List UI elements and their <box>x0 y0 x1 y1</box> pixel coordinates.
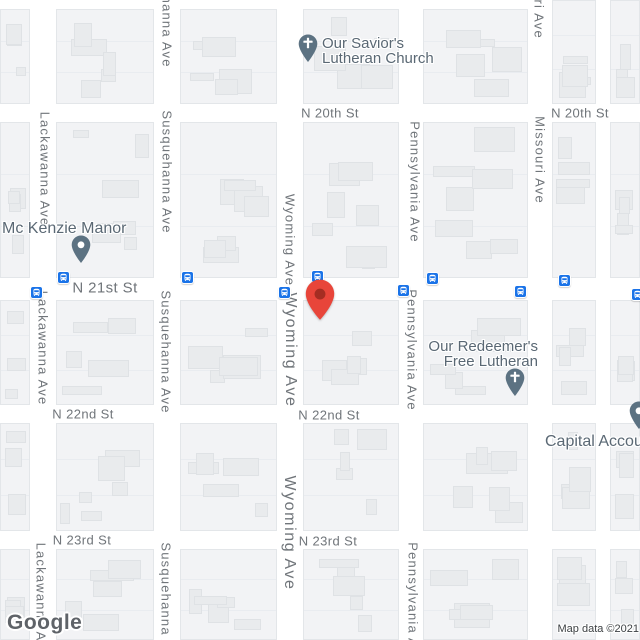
parcel-line <box>424 495 527 496</box>
building-footprint <box>215 79 238 95</box>
building-footprint <box>350 596 363 610</box>
bus-stop-icon[interactable] <box>397 284 410 297</box>
building-footprint <box>569 467 591 492</box>
building-footprint <box>346 246 387 268</box>
poi-label-our-redeemer-s-free-lutheran[interactable]: Our Redeemer'sFree Lutheran <box>428 339 538 369</box>
building-footprint <box>619 197 630 214</box>
building-footprint <box>561 381 587 395</box>
church-pin-icon[interactable] <box>298 34 318 68</box>
building-footprint <box>358 615 372 632</box>
bus-stop-icon[interactable] <box>631 288 640 301</box>
poi-label-line: Capital Account <box>545 434 640 450</box>
building-footprint <box>194 596 227 605</box>
parcel-line <box>1 174 29 175</box>
street-label-n-21st-st: N 21st St <box>72 280 137 297</box>
bus-stop-icon[interactable] <box>30 286 43 299</box>
building-footprint <box>60 503 70 524</box>
parcel-line <box>1 335 29 336</box>
building-footprint <box>7 358 26 371</box>
building-footprint <box>562 65 588 87</box>
poi-label-mc-kenzie-manor[interactable]: Mc Kenzie Manor <box>2 221 127 237</box>
building-footprint <box>255 503 268 517</box>
building-footprint <box>456 54 485 77</box>
building-footprint <box>356 205 379 226</box>
parcel-line <box>57 335 153 336</box>
poi-label-line: Our Redeemer's <box>428 339 538 354</box>
street-label-n-23rd-st: N 23rd St <box>53 533 112 548</box>
parcel-line <box>304 610 398 611</box>
map-attribution: Map data ©2021 <box>558 623 640 635</box>
building-footprint <box>73 130 89 138</box>
building-footprint <box>98 456 125 481</box>
building-footprint <box>319 559 359 568</box>
building-footprint <box>6 431 26 443</box>
building-footprint <box>361 65 393 89</box>
building-footprint <box>5 389 18 399</box>
parcel-line <box>1 579 29 580</box>
building-footprint <box>435 220 473 237</box>
building-footprint <box>620 44 631 70</box>
building-footprint <box>16 67 26 76</box>
avenue-label-susquehanna-ave: Susquehanna Ave <box>160 110 175 233</box>
building-footprint <box>188 346 223 369</box>
avenue-label-missouri-ave: Missouri Ave <box>532 0 547 39</box>
building-footprint <box>112 482 128 496</box>
poi-label-line: Our Savior's <box>322 36 434 51</box>
poi-label-line: Free Lutheran <box>428 354 538 369</box>
building-footprint <box>7 311 24 324</box>
building-footprint <box>79 492 92 503</box>
poi-label-capital-account[interactable]: Capital Account <box>545 434 640 450</box>
building-footprint <box>331 17 347 36</box>
parcel-line <box>304 335 398 336</box>
avenue-label-missouri-ave: Missouri Ave <box>533 116 548 204</box>
building-footprint <box>492 47 522 72</box>
building-footprint <box>6 24 22 45</box>
building-footprint <box>556 179 590 188</box>
street-label-n-22nd-st: N 22nd St <box>52 407 113 422</box>
building-footprint <box>338 162 373 181</box>
poi-label-line: Lutheran Church <box>322 51 434 66</box>
building-footprint <box>474 127 515 152</box>
building-footprint <box>366 499 377 515</box>
building-footprint <box>476 447 488 465</box>
building-footprint <box>433 166 475 177</box>
building-footprint <box>83 614 119 631</box>
building-footprint <box>81 80 101 98</box>
building-footprint <box>8 191 20 204</box>
building-footprint <box>446 187 474 211</box>
building-footprint <box>66 351 82 368</box>
city-block <box>610 300 640 405</box>
building-footprint <box>219 357 258 376</box>
parcel-line <box>553 35 595 36</box>
poi-pin-icon[interactable] <box>629 401 640 435</box>
building-footprint <box>618 356 634 375</box>
building-footprint <box>12 235 24 254</box>
building-footprint <box>615 578 633 594</box>
parcel-line <box>181 226 276 227</box>
building-footprint <box>559 347 571 366</box>
building-footprint <box>244 196 269 217</box>
parcel-line <box>181 579 276 580</box>
avenue-label-lackawanna-ave: Lackawanna Ave <box>38 112 53 227</box>
poi-pin-icon[interactable] <box>71 235 91 269</box>
building-footprint <box>190 73 214 81</box>
building-footprint <box>616 77 635 98</box>
destination-marker-icon[interactable] <box>305 279 335 326</box>
building-footprint <box>615 225 633 234</box>
building-footprint <box>557 583 590 606</box>
bus-stop-icon[interactable] <box>426 272 439 285</box>
building-footprint <box>74 23 92 47</box>
bus-stop-icon[interactable] <box>181 271 194 284</box>
avenue-label-susquehanna-ave: Susquehanna Ave <box>159 542 174 640</box>
building-footprint <box>619 453 634 478</box>
building-footprint <box>124 237 137 250</box>
avenue-label-pennsylvania-ave: Pennsylvania Ave <box>406 542 421 640</box>
building-footprint <box>81 511 102 521</box>
bus-stop-icon[interactable] <box>558 274 571 287</box>
building-footprint <box>557 557 582 580</box>
building-footprint <box>224 180 256 191</box>
building-footprint <box>446 30 481 48</box>
parcel-line <box>553 226 595 227</box>
building-footprint <box>312 223 333 236</box>
avenue-label-susquehanna-ave: Susquehanna Ave <box>159 290 174 413</box>
building-footprint <box>223 458 259 476</box>
parcel-line <box>611 35 639 36</box>
building-footprint <box>333 576 365 596</box>
building-footprint <box>430 570 468 586</box>
bus-stop-icon[interactable] <box>278 286 291 299</box>
building-footprint <box>108 560 141 579</box>
building-footprint <box>357 429 387 450</box>
building-footprint <box>234 619 261 630</box>
building-footprint <box>196 453 214 475</box>
building-footprint <box>204 240 226 258</box>
street-label-n-20th-st: N 20th St <box>301 106 359 121</box>
building-footprint <box>615 494 634 519</box>
building-footprint <box>334 429 349 445</box>
building-footprint <box>340 452 350 471</box>
building-footprint <box>347 356 361 374</box>
building-footprint <box>489 487 510 511</box>
building-footprint <box>477 318 521 336</box>
building-footprint <box>563 56 588 64</box>
building-footprint <box>73 322 108 333</box>
avenue-label-wyoming-ave: Wyoming Ave <box>283 194 298 286</box>
building-footprint <box>108 318 136 334</box>
building-footprint <box>558 162 590 175</box>
parcel-line <box>611 335 639 336</box>
avenue-label-pennsylvania-ave: Pennsylvania Ave <box>405 289 420 411</box>
parcel-line <box>181 174 276 175</box>
building-footprint <box>460 605 493 620</box>
parcel-line <box>553 459 595 460</box>
parcel-line <box>553 370 595 371</box>
poi-label-line: Mc Kenzie Manor <box>2 221 127 237</box>
building-footprint <box>453 486 473 508</box>
building-footprint <box>474 79 509 97</box>
building-footprint <box>491 451 517 471</box>
parcel-line <box>57 495 153 496</box>
building-footprint <box>88 360 129 377</box>
bus-stop-icon[interactable] <box>57 271 70 284</box>
building-footprint <box>616 561 627 578</box>
building-footprint <box>472 169 513 189</box>
google-logo[interactable]: Google <box>7 611 82 635</box>
map-canvas[interactable]: N 20th StN 20th StN 21st StN 22nd StN 22… <box>0 0 640 640</box>
building-footprint <box>492 559 519 580</box>
parcel-line <box>57 174 153 175</box>
bus-stop-icon[interactable] <box>514 285 527 298</box>
parcel-line <box>304 495 398 496</box>
street-label-n-20th-st: N 20th St <box>551 106 609 121</box>
building-footprint <box>569 328 586 346</box>
building-footprint <box>245 328 268 337</box>
building-footprint <box>102 180 139 198</box>
avenue-label-wyoming-ave: Wyoming Ave <box>280 476 298 591</box>
building-footprint <box>8 494 26 515</box>
street-label-n-22nd-st: N 22nd St <box>298 408 359 423</box>
parcel-line <box>611 174 639 175</box>
building-footprint <box>466 241 492 259</box>
building-footprint <box>135 134 149 158</box>
building-footprint <box>5 448 22 467</box>
parcel-line <box>553 610 595 611</box>
building-footprint <box>490 239 518 254</box>
building-footprint <box>558 137 572 159</box>
building-footprint <box>203 484 239 497</box>
avenue-label-wyoming-ave: Wyoming Ave <box>281 293 299 408</box>
building-footprint <box>327 192 345 218</box>
street-label-n-23rd-st: N 23rd St <box>299 534 358 549</box>
building-footprint <box>93 581 122 597</box>
building-footprint <box>352 331 372 346</box>
avenue-label-susquehanna-ave: Susquehanna Ave <box>160 0 175 68</box>
church-pin-icon[interactable] <box>505 368 525 402</box>
avenue-label-pennsylvania-ave: Pennsylvania Ave <box>408 121 423 243</box>
building-footprint <box>202 37 236 57</box>
building-footprint <box>103 52 116 76</box>
building-footprint <box>62 386 102 395</box>
parcel-line <box>304 459 398 460</box>
poi-label-our-savior-s-lutheran-church[interactable]: Our Savior'sLutheran Church <box>322 36 434 66</box>
avenue-label-lackawanna-ave: Lackawanna Ave <box>36 291 51 406</box>
